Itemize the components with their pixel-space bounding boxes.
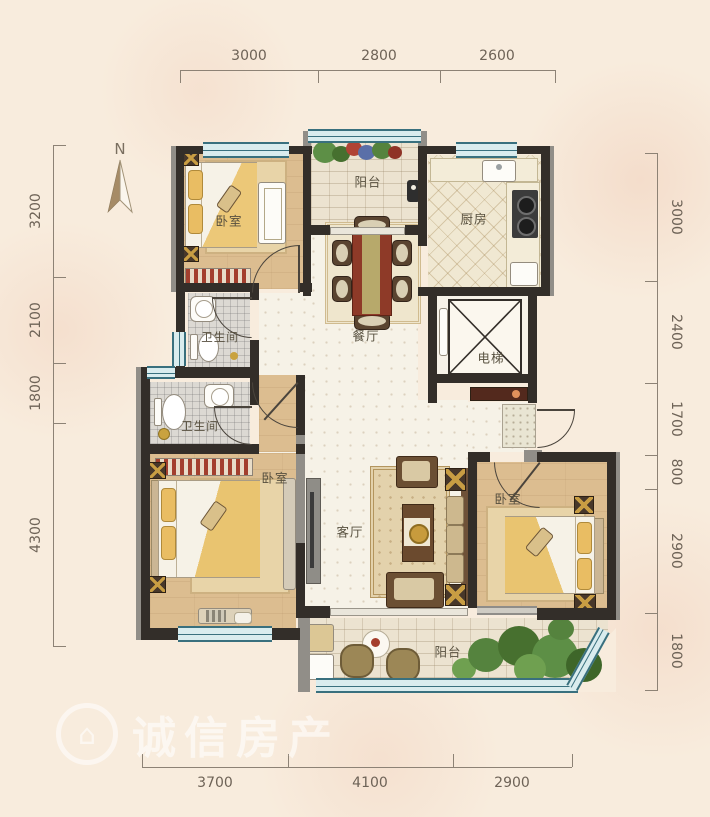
- dim-value: 2600: [479, 48, 515, 64]
- wall: [541, 146, 550, 296]
- door-leaf: [214, 406, 252, 408]
- dim-line-left: [53, 145, 54, 647]
- window: [308, 129, 421, 143]
- tv-screen: [310, 492, 314, 568]
- kitchen-appliance: [510, 262, 538, 286]
- dim-value: 4100: [352, 775, 388, 791]
- entry-doormat: [502, 404, 536, 448]
- wall: [300, 283, 312, 292]
- window: [456, 142, 517, 158]
- dim-tick: [318, 70, 319, 83]
- dim-value: 1700: [668, 401, 684, 437]
- stove-burner: [517, 196, 536, 215]
- dining-label: 餐厅: [352, 326, 379, 345]
- dining-chair: [332, 276, 352, 302]
- door-leaf: [212, 297, 252, 299]
- entry-door-arc: [537, 410, 575, 448]
- bathroom-upper-label: 卫生间: [201, 329, 239, 345]
- dim-tick: [555, 70, 556, 83]
- north-needle-icon: [105, 158, 135, 216]
- wicker-chair: [386, 648, 420, 682]
- dim-tick: [572, 754, 573, 767]
- wall: [176, 146, 184, 292]
- dining-chair: [392, 240, 412, 266]
- wall: [405, 225, 425, 235]
- stove-burner: [517, 217, 536, 236]
- wall: [528, 296, 537, 403]
- slippers: [234, 612, 252, 624]
- sink-faucet: [496, 164, 502, 170]
- window: [172, 332, 186, 366]
- pillow: [188, 204, 203, 234]
- dim-tick: [440, 70, 441, 83]
- balcony-table-dish: [371, 638, 380, 647]
- dim-line-right: [657, 153, 658, 690]
- dim-tick: [645, 153, 658, 154]
- elevator-door-slot: [439, 308, 448, 356]
- dim-value: 4300: [28, 517, 44, 553]
- wall: [418, 287, 550, 296]
- dim-value: 2900: [668, 533, 684, 569]
- balcony-fixture-dot: [411, 185, 416, 190]
- sofa-side-table: [445, 584, 466, 606]
- window: [147, 366, 175, 379]
- window-band: [477, 606, 537, 615]
- watermark: ⌂ 诚信房产: [56, 702, 340, 766]
- dim-tick: [645, 281, 658, 282]
- dining-chair: [332, 240, 352, 266]
- pillow: [577, 558, 592, 590]
- wall: [537, 452, 616, 462]
- dim-tick: [645, 690, 658, 691]
- knob-dot: [158, 428, 170, 440]
- wall: [607, 452, 616, 620]
- dim-value: 2100: [28, 302, 44, 338]
- bed-blanket: [176, 481, 260, 577]
- dim-value: 3700: [197, 775, 233, 791]
- dim-value: 2400: [668, 314, 684, 350]
- dim-tick: [53, 363, 66, 364]
- armchair-cushion: [402, 461, 430, 481]
- wall: [176, 367, 259, 378]
- kitchen-label: 厨房: [460, 209, 487, 228]
- window: [316, 678, 578, 693]
- nightstand: [149, 576, 166, 593]
- bedroom-right-label: 卧室: [494, 489, 521, 508]
- north-indicator: N: [100, 140, 140, 220]
- dim-value: 3000: [231, 48, 267, 64]
- living-label: 客厅: [336, 522, 363, 541]
- flower-plant: [388, 146, 402, 159]
- books-on-bench: [206, 610, 226, 622]
- dim-tick: [645, 455, 658, 456]
- wicker-chair: [340, 644, 374, 678]
- wall: [537, 608, 616, 620]
- wall: [296, 444, 305, 454]
- nightstand: [183, 246, 199, 262]
- dining-balcony-slider: [330, 227, 405, 235]
- wall: [250, 340, 259, 378]
- dim-line-top: [180, 70, 555, 71]
- wall: [616, 452, 620, 620]
- sofa-cushion: [446, 554, 464, 583]
- wall: [550, 146, 554, 296]
- dim-tick: [53, 646, 66, 647]
- nightstand: [149, 462, 166, 479]
- dim-tick: [645, 489, 658, 490]
- dim-value: 2900: [494, 775, 530, 791]
- living-balcony-slider: [330, 608, 468, 616]
- bed-headboard: [594, 518, 604, 594]
- wall: [428, 296, 437, 403]
- dim-line-bottom: [142, 767, 572, 768]
- bedroom-runner-rug: [155, 458, 253, 476]
- vanity-basin: [211, 388, 229, 406]
- door-leaf: [298, 245, 300, 293]
- dim-value: 2800: [361, 48, 397, 64]
- entry-door-leaf: [537, 409, 575, 411]
- toilet: [190, 334, 198, 360]
- dim-tick: [645, 383, 658, 384]
- watermark-text: 诚信房产: [132, 702, 340, 766]
- window: [203, 142, 289, 158]
- north-label: N: [100, 140, 140, 158]
- pillow: [188, 170, 203, 200]
- watermark-logo-icon: ⌂: [56, 703, 118, 765]
- wall: [176, 283, 253, 292]
- dim-value: 3200: [28, 193, 44, 229]
- sofa-side-table: [445, 468, 466, 491]
- dim-value: 800: [668, 459, 684, 486]
- wall: [428, 374, 537, 383]
- wall: [468, 452, 477, 608]
- bedroom-left-label: 卧室: [261, 468, 288, 487]
- bathroom-lower-label: 卫生间: [181, 418, 219, 434]
- window: [178, 626, 272, 642]
- elevator-label: 电梯: [477, 348, 504, 367]
- table-runner: [362, 230, 380, 314]
- dim-tick: [453, 754, 454, 767]
- sofa-cushion: [446, 496, 464, 525]
- pillow: [577, 522, 592, 554]
- vanity-basin: [195, 300, 213, 318]
- dim-tick: [53, 277, 66, 278]
- balcony-bottom-label: 阳台: [434, 642, 461, 661]
- pillow: [161, 488, 176, 522]
- dim-value: 3000: [668, 199, 684, 235]
- wall: [141, 444, 259, 454]
- balcony-top-label: 阳台: [354, 172, 381, 191]
- sofa-cushion: [446, 525, 464, 554]
- table-medallion: [409, 524, 429, 544]
- dim-tick: [645, 613, 658, 614]
- bedroom-top-left-label: 卧室: [215, 211, 242, 230]
- wall: [303, 146, 311, 296]
- dim-tick: [180, 70, 181, 83]
- wall: [296, 543, 305, 608]
- dim-value: 1800: [28, 375, 44, 411]
- wardrobe-handle: [264, 188, 282, 240]
- balcony-plant: [548, 618, 574, 640]
- cabinet-light: [512, 390, 520, 398]
- pillow: [161, 526, 176, 560]
- wardrobe: [283, 478, 296, 590]
- dim-tick: [53, 145, 66, 146]
- knob-dot: [230, 352, 238, 360]
- toilet: [154, 398, 162, 426]
- nightstand: [574, 496, 594, 514]
- wall: [303, 225, 330, 235]
- dim-tick: [53, 423, 66, 424]
- wall: [141, 367, 150, 640]
- dining-chair: [392, 276, 412, 302]
- armchair-cushion: [394, 578, 434, 600]
- dim-value: 1800: [668, 633, 684, 669]
